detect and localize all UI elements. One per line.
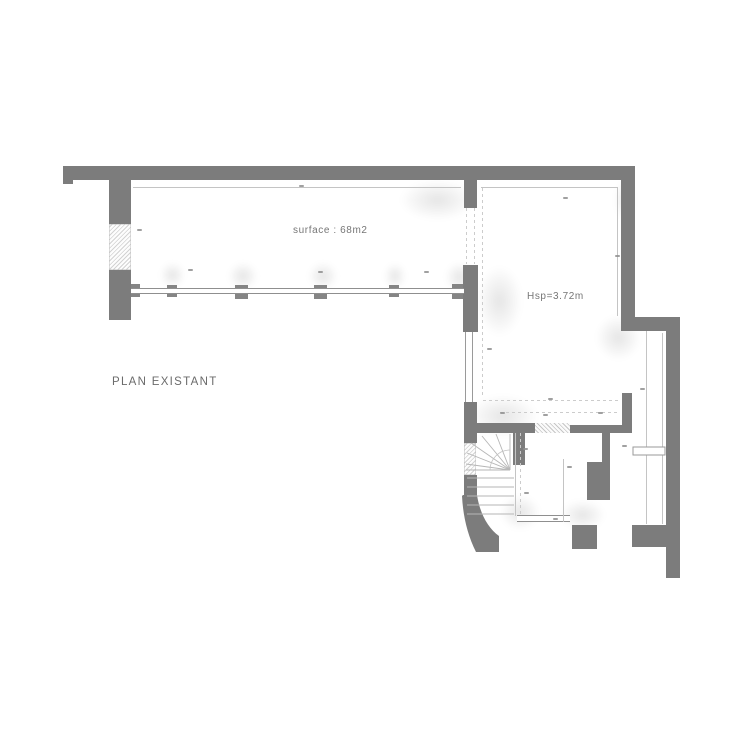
- room-label-ceiling-height: Hsp=3.72m: [527, 292, 584, 302]
- floor-plan-canvas: surface : 68m2 Hsp=3.72m PLAN EXISTANT: [0, 0, 750, 750]
- stairs-and-curved-wall-layer: [0, 0, 750, 750]
- curved-wall: [462, 495, 499, 552]
- room-label-surface-area: surface : 68m2: [293, 226, 368, 236]
- stair-winder-tread: [496, 434, 510, 470]
- door-leaf: [633, 447, 665, 455]
- plan-title: PLAN EXISTANT: [112, 377, 218, 389]
